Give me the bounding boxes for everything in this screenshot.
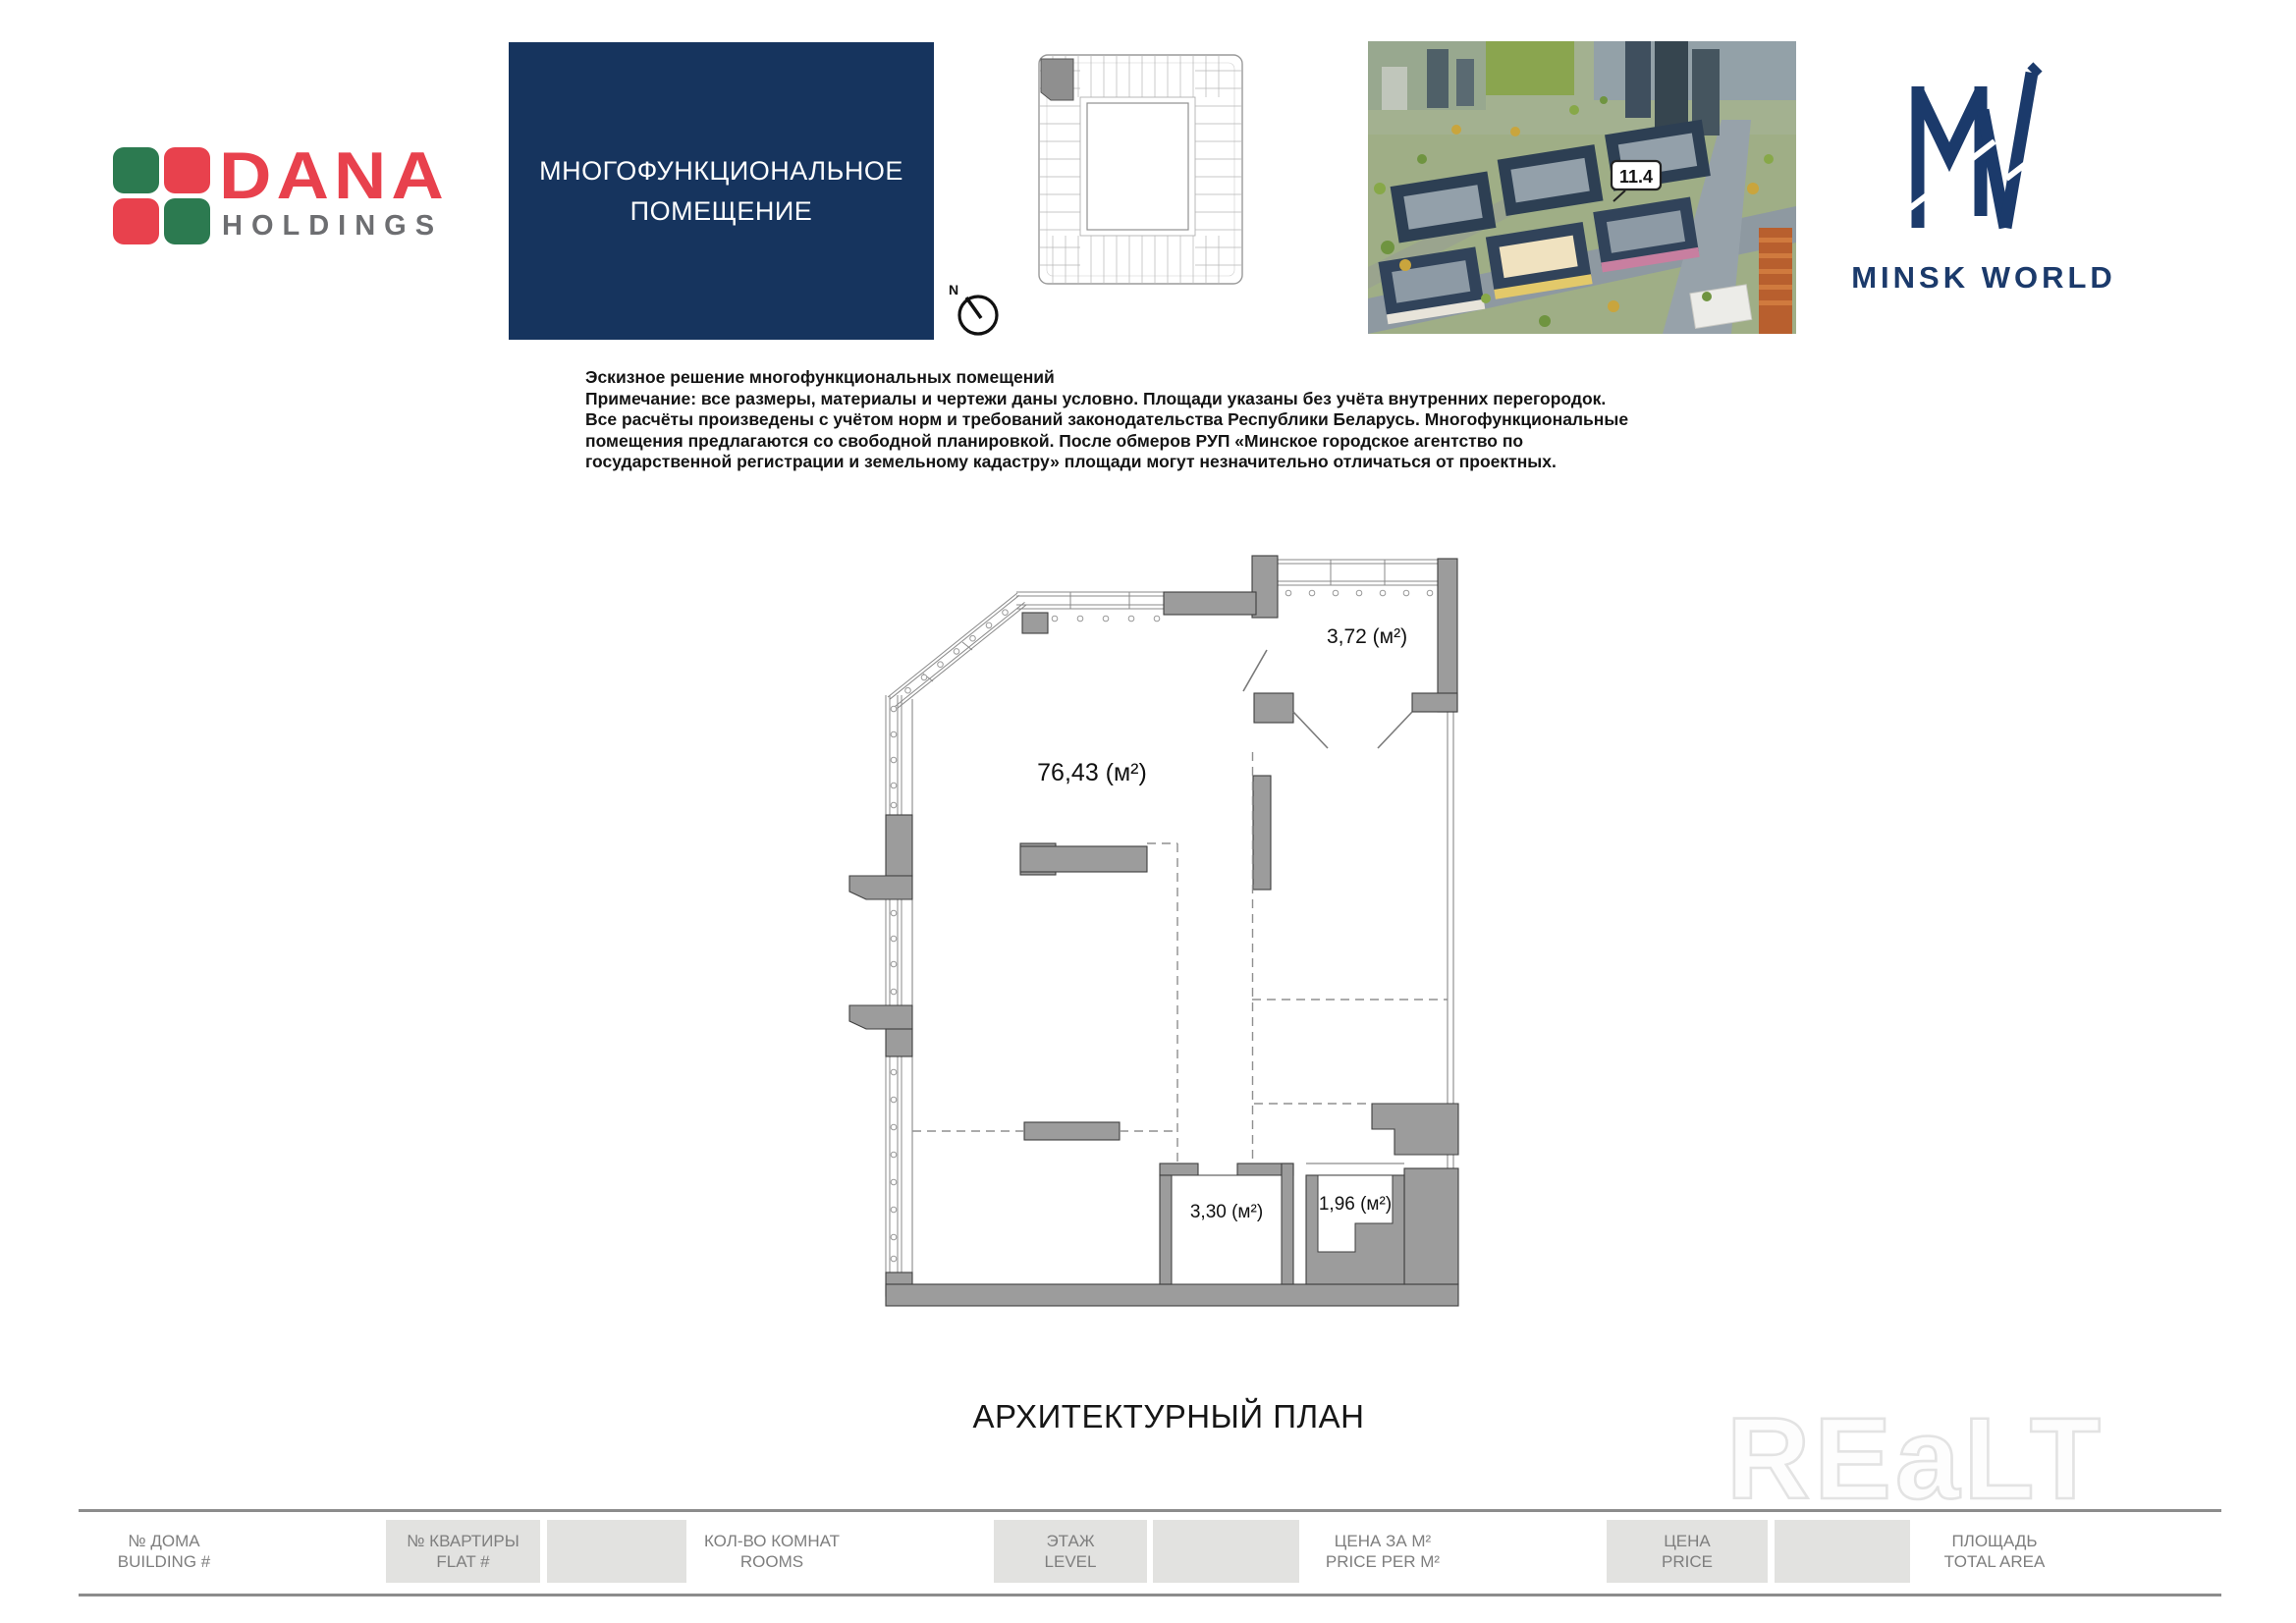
dana-square-green-icon — [113, 147, 159, 193]
footer-field-total-area-ru: ПЛОЩАДЬ — [1916, 1531, 2073, 1551]
notes-line: помещения предлагаются со свободной план… — [585, 431, 1628, 453]
footer-field-level: ЭТАЖ LEVEL — [994, 1520, 1147, 1583]
compass-icon: N — [941, 277, 1010, 346]
dana-square-red-icon — [164, 147, 210, 193]
title-line-1: МНОГОФУНКЦИОНАЛЬНОЕ — [539, 151, 903, 191]
footer-field-total-area-en: TOTAL AREA — [1916, 1551, 2073, 1572]
dana-square-green-icon — [164, 198, 210, 244]
minsk-world-logo: MINSK WORLD — [1836, 59, 2131, 304]
footer-field-flat: № КВАРТИРЫ FLAT # — [386, 1520, 540, 1583]
compass-north-label: N — [949, 282, 958, 298]
dana-holdings-logo: DANA HOLDINGS — [113, 145, 506, 248]
footer-field-flat-en: FLAT # — [386, 1551, 540, 1572]
dana-wordmark: DANA — [219, 142, 449, 209]
footer-box-price-value — [1775, 1520, 1910, 1583]
dana-subtitle: HOLDINGS — [222, 210, 443, 243]
realt-watermark-text: REaLT — [1726, 1394, 2105, 1524]
title-line-2: ПОМЕЩЕНИЕ — [630, 191, 813, 232]
architectural-floor-plan: 76,43 (м²) 3,72 (м²) 3,30 (м²) 1,96 (м²) — [825, 511, 1512, 1335]
room-330-interior — [1172, 1175, 1282, 1284]
notes-line: государственной регистрации и земельному… — [585, 452, 1628, 473]
footer-field-total-area: ПЛОЩАДЬ TOTAL AREA — [1916, 1520, 2073, 1583]
dana-logo-squares-icon — [113, 147, 211, 245]
footer-bottom-rule — [79, 1594, 2221, 1596]
footer-field-price-per-m2: ЦЕНА ЗА М² PRICE PER M² — [1304, 1520, 1461, 1583]
footer-field-price-per-m2-en: PRICE PER M² — [1304, 1551, 1461, 1572]
dana-square-red-icon — [113, 198, 159, 244]
building-number-label: 11.4 — [1619, 167, 1653, 187]
footer-field-rooms-ru: КОЛ-ВО КОМНАТ — [693, 1531, 850, 1551]
footer-field-rooms: КОЛ-ВО КОМНАТ ROOMS — [693, 1520, 850, 1583]
plan-caption: АРХИТЕКТУРНЫЙ ПЛАН — [825, 1398, 1512, 1435]
footer-field-price-en: PRICE — [1607, 1551, 1768, 1572]
footer-top-rule — [79, 1509, 2221, 1512]
footer-box-level-value — [1153, 1520, 1299, 1583]
aerial-render-image: 11.4 — [1368, 41, 1796, 334]
notes-line: Все расчёты произведены с учётом норм и … — [585, 409, 1628, 431]
area-label-room-b: 1,96 (м²) — [1319, 1194, 1392, 1215]
footer-field-building: № ДОМА BUILDING # — [85, 1520, 243, 1583]
document-title-box: МНОГОФУНКЦИОНАЛЬНОЕ ПОМЕЩЕНИЕ — [509, 42, 934, 340]
footer-field-flat-ru: № КВАРТИРЫ — [386, 1531, 540, 1551]
footer-field-price: ЦЕНА PRICE — [1607, 1520, 1768, 1583]
notes-paragraph: Эскизное решение многофункциональных пом… — [585, 367, 1628, 473]
area-label-main: 76,43 (м²) — [1037, 759, 1147, 786]
notes-line: Примечание: все размеры, материалы и чер… — [585, 389, 1628, 410]
footer-box-flat-value — [547, 1520, 686, 1583]
footer-field-price-per-m2-ru: ЦЕНА ЗА М² — [1304, 1531, 1461, 1551]
realt-watermark: REaLT — [1721, 1388, 2192, 1526]
minsk-world-wordmark: MINSK WORLD — [1836, 260, 2131, 296]
footer-field-building-en: BUILDING # — [85, 1551, 243, 1572]
footer-field-rooms-en: ROOMS — [693, 1551, 850, 1572]
footer-field-level-ru: ЭТАЖ — [994, 1531, 1147, 1551]
notes-line: Эскизное решение многофункциональных пом… — [585, 367, 1628, 389]
highlighted-unit-marker — [1041, 59, 1073, 100]
area-label-loggia: 3,72 (м²) — [1327, 625, 1407, 648]
area-label-room-a: 3,30 (м²) — [1190, 1202, 1263, 1222]
building-overview-mini-plan — [1037, 51, 1244, 288]
footer-field-price-ru: ЦЕНА — [1607, 1531, 1768, 1551]
free-plan-dashed-lines — [912, 752, 1448, 1163]
footer-field-building-ru: № ДОМА — [85, 1531, 243, 1551]
footer-field-level-en: LEVEL — [994, 1551, 1147, 1572]
minsk-world-monogram-icon — [1910, 59, 2057, 236]
